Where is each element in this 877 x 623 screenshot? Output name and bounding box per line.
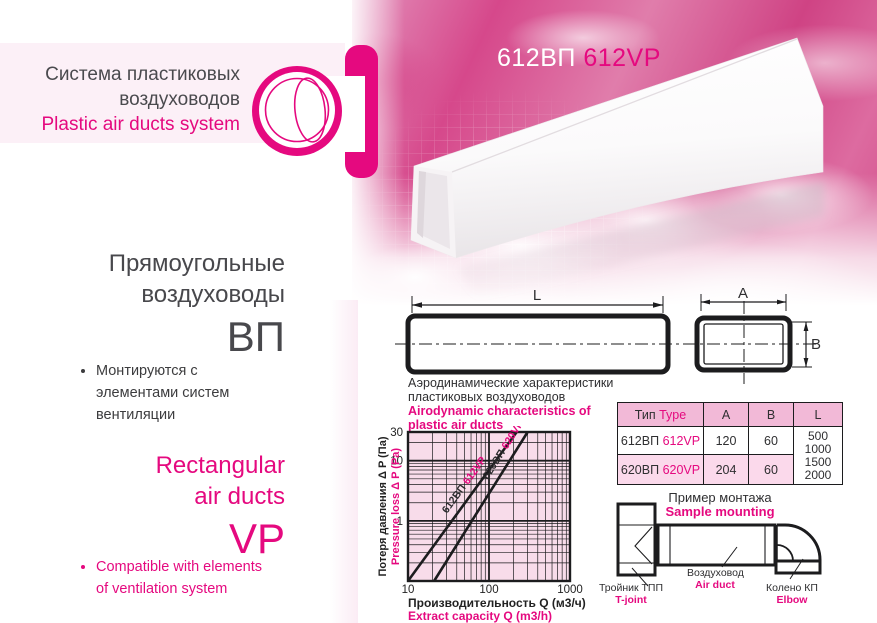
table-row: 612ВП 612VP 120 60 500 1000 1500 2000 [618,427,843,455]
features-en: Compatible with elements of ventilation … [82,556,268,600]
dimension-drawing: L A B [395,283,825,388]
feature-en: Compatible with elements of ventilation … [96,556,268,600]
svg-text:Pressure loss Δ P (Pa): Pressure loss Δ P (Pa) [390,448,402,565]
cell-type: 612ВП 612VP [618,427,704,455]
section-heading-ru: Прямоугольные воздуховоды ВП [40,248,285,360]
duct-label-ru: Воздуховод [687,567,743,579]
l-value: 500 [794,430,842,443]
elbow-label-ru: Колено КП [764,582,820,594]
svg-text:1000: 1000 [557,584,583,596]
chart-title: Аэродинамические характеристики пластико… [408,376,613,432]
cell-type: 620ВП 620VP [618,455,704,485]
pink-fade-strip [330,300,358,623]
svg-text:Потеря давления Δ P (Па): Потеря давления Δ P (Па) [377,436,389,576]
type-code-ru: ВП [40,314,285,360]
col-b: B [749,403,794,427]
svg-text:30: 30 [390,427,403,439]
heading-ru-line2: воздуховоды [40,279,285,310]
brand-title-ru-line1: Система пластиковых [0,62,240,87]
tjoint-label-en: T-joint [596,594,666,606]
svg-text:Extract capacity Q (m3/h): Extract capacity Q (m3/h) [408,609,552,623]
l-value: 2000 [794,469,842,482]
duct-shape [658,525,775,565]
heading-en-line1: Rectangular [40,450,285,481]
round-duct-logo-icon [250,40,385,185]
section-heading-en: Rectangular air ducts VP [40,450,285,562]
svg-text:100: 100 [479,584,498,596]
svg-text:10: 10 [402,584,415,596]
cell-b: 60 [749,455,794,485]
length-dim-label: L [533,287,541,304]
cell-type-en: 612VP [663,434,701,448]
heading-en-line2: air ducts [40,481,285,512]
cell-type-ru: 620ВП [621,463,659,477]
chart-title-en-line1: Airodynamic characteristics of [408,404,613,418]
cell-a: 204 [704,455,749,485]
chart-title-ru-line1: Аэродинамические характеристики [408,376,613,390]
col-type: Тип Type [618,403,704,427]
feature-ru: Монтируются с элементами систем вентиляц… [96,360,278,426]
svg-text:Производительность Q (м3/ч): Производительность Q (м3/ч) [408,596,586,610]
width-dim-label: A [738,285,748,302]
heading-ru-line1: Прямоугольные [40,248,285,279]
brand-title-en: Plastic air ducts system [0,112,240,137]
l-value: 1500 [794,456,842,469]
product-code: 612ВП 612VP [497,44,661,73]
col-a: A [704,403,749,427]
l-value: 1000 [794,443,842,456]
product-code-en: 612VP [583,44,661,72]
tjoint-shape [618,504,655,575]
cell-b: 60 [749,427,794,455]
spec-table: Тип Type A B L 612ВП 612VP 120 60 500 10… [617,402,843,485]
duct-label: Воздуховод Air duct [687,567,743,591]
brand-title: Система пластиковых воздуховодов Plastic… [0,62,240,137]
brand-title-ru-line2: воздуховодов [0,87,240,112]
tjoint-label-ru: Тройник ТПП [596,582,666,594]
cell-l-merged: 500 1000 1500 2000 [794,427,843,485]
duct-label-en: Air duct [687,579,743,591]
cell-type-en: 620VP [663,463,701,477]
col-type-ru: Тип [635,408,656,422]
col-l: L [794,403,843,427]
features-ru: Монтируются с элементами систем вентиляц… [82,360,278,426]
chart-title-ru-line2: пластиковых воздуховодов [408,390,613,404]
elbow-label-en: Elbow [764,594,820,606]
cell-a: 120 [704,427,749,455]
tjoint-label: Тройник ТПП T-joint [596,582,666,606]
elbow-label: Колено КП Elbow [764,582,820,606]
product-code-ru: 612ВП [497,44,576,72]
table-header-row: Тип Type A B L [618,403,843,427]
elbow-shape [777,525,820,560]
col-type-en: Type [659,408,686,422]
cell-type-ru: 612ВП [621,434,659,448]
height-dim-label: B [811,336,821,353]
catalog-page: 612ВП 612VP Система пластиковых воздухов… [0,0,877,623]
aerodynamic-chart: 612ВП 612VP620ВП 620VP30101101001000Поте… [370,426,610,623]
